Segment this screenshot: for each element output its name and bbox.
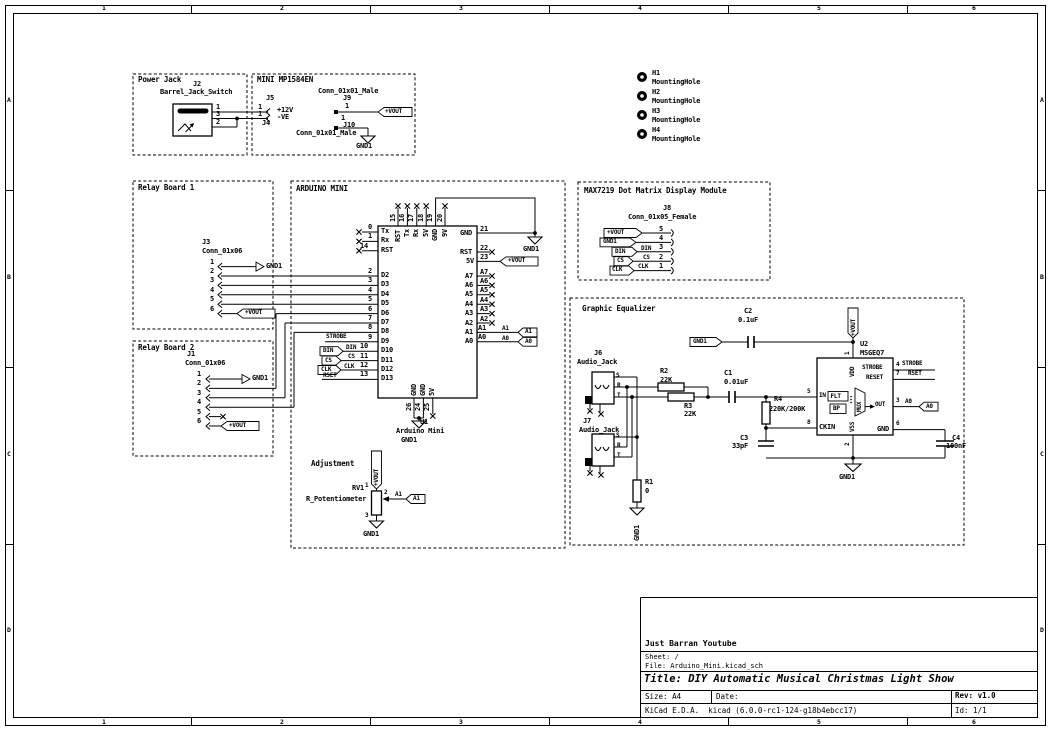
- arduino_mini-a6: A6: [465, 282, 473, 289]
- arduino_mini-18: 18: [418, 214, 425, 222]
- arduino_mini-15: 15: [390, 214, 397, 222]
- arduino_mini-d2: D2: [381, 272, 389, 279]
- arduino_mini-a1: A1: [525, 329, 532, 335]
- graphic_equalizer-a0: A0: [905, 399, 912, 405]
- mini_mp1584en-mini-mp1584en: MINI MP1584EN: [257, 76, 313, 84]
- border-col-3: 3: [459, 5, 463, 12]
- relay_board_1-relay-board-1: Relay Board 1: [138, 184, 194, 192]
- graphic_equalizer-in: IN: [819, 393, 826, 399]
- arduino_mini-25: 25: [424, 403, 431, 411]
- mounting_holes-mountinghole: MountingHole: [652, 117, 700, 124]
- arduino_mini-3: 3: [368, 277, 372, 284]
- arduino_mini-5v: 5V: [423, 229, 430, 237]
- border-col-6: 6: [972, 719, 976, 726]
- relay_board_1-6: 6: [210, 306, 214, 313]
- adjustment-1: 1: [365, 483, 368, 489]
- arduino_mini-vout: +VOUT: [508, 258, 525, 264]
- graphic_equalizer-t: T: [617, 453, 620, 459]
- power_jack-power-jack: Power Jack: [138, 76, 181, 84]
- arduino_mini-rx: Rx: [381, 237, 389, 244]
- arduino_mini-9v: 9V: [442, 229, 449, 237]
- max7219_module-2: 2: [659, 254, 663, 261]
- arduino_mini-gnd: GND: [432, 229, 439, 241]
- border-row-C: C: [7, 451, 11, 458]
- arduino_mini-d4: D4: [381, 291, 389, 298]
- graphic_equalizer-gnd1: GND1: [634, 525, 641, 541]
- arduino_mini-rx: Rx: [413, 229, 420, 237]
- arduino_mini-tx: Tx: [381, 228, 389, 235]
- arduino_mini-a1: A1: [478, 325, 486, 332]
- graphic_equalizer-8: 8: [807, 420, 810, 426]
- mounting_holes-h1: H1: [652, 70, 660, 77]
- graphic_equalizer-vout: +VOUT: [851, 319, 857, 336]
- relay_board_2-relay-board-2: Relay Board 2: [138, 344, 194, 352]
- relay_board_2-3: 3: [197, 390, 201, 397]
- max7219_module-3: 3: [659, 244, 663, 251]
- graphic_equalizer-s: S: [616, 433, 619, 439]
- kicad-schematic-sheet: Power JackJ2Barrel_Jack_Switch132MINI MP…: [0, 0, 1051, 731]
- sheet-path: Sheet: /: [645, 654, 679, 661]
- adjustment-a1: A1: [395, 492, 402, 498]
- arduino_mini-din: DIN: [346, 345, 356, 351]
- mounting_holes-h4: H4: [652, 127, 660, 134]
- graphic_equalizer-c2: C2: [744, 308, 752, 315]
- graphic_equalizer-reset: RESET: [866, 375, 883, 381]
- max7219_module-max7219-dot-matrix-display-module: MAX7219 Dot Matrix Display Module: [584, 187, 726, 195]
- graphic_equalizer-r: R: [617, 383, 620, 389]
- mini_mp1584en-j4: J4: [262, 120, 270, 127]
- max7219_module-vout: +VOUT: [607, 230, 624, 236]
- mounting_holes-h3: H3: [652, 108, 660, 115]
- arduino_mini-23: 23: [480, 254, 488, 261]
- graphic_equalizer-r4: R4: [774, 396, 782, 403]
- border-col-4: 4: [638, 719, 642, 726]
- border-col-2: 2: [280, 719, 284, 726]
- relay_board_1-gnd1: GND1: [266, 263, 282, 270]
- graphic_equalizer-r3: R3: [684, 403, 692, 410]
- power_jack-2: 2: [216, 119, 220, 126]
- max7219_module-j8: J8: [663, 205, 671, 212]
- arduino_mini-d6: D6: [381, 310, 389, 317]
- arduino_mini-4: 4: [368, 287, 372, 294]
- relay_board_1-vout: +VOUT: [245, 310, 262, 316]
- relay_board_1-3: 3: [210, 277, 214, 284]
- graphic_equalizer-vss: VSS: [850, 422, 856, 432]
- arduino_mini-7: 7: [368, 315, 372, 322]
- arduino_mini-a3: A3: [465, 310, 473, 317]
- graphic_equalizer-0-01uf: 0.01uF: [724, 379, 748, 386]
- arduino_mini-24: 24: [415, 403, 422, 411]
- max7219_module-clk: CLK: [612, 267, 622, 273]
- power_jack-j2: J2: [193, 81, 201, 88]
- power_jack-barrel-jack-switch: Barrel_Jack_Switch: [160, 89, 232, 96]
- max7219_module-cs: CS: [643, 255, 650, 261]
- graphic_equalizer-3: 3: [896, 398, 899, 404]
- arduino_mini-d9: D9: [381, 338, 389, 345]
- arduino_mini-u1: U1: [420, 419, 428, 426]
- graphic_equalizer-c4: C4: [952, 435, 960, 442]
- graphic_equalizer-vdd: VDD: [850, 367, 856, 377]
- arduino_mini-gnd: GND: [420, 384, 427, 396]
- mini_mp1584en-1: 1: [258, 111, 262, 118]
- adjustment-2: 2: [384, 490, 387, 496]
- max7219_module-cs: CS: [617, 258, 624, 264]
- relay_board_1-5: 5: [210, 296, 214, 303]
- arduino_mini-rst: RST: [395, 230, 402, 242]
- schematic-title: Title: DIY Automatic Musical Christmas L…: [644, 674, 954, 685]
- arduino_mini-8: 8: [368, 324, 372, 331]
- relay_board_1-1: 1: [210, 259, 214, 266]
- graphic_equalizer-gnd1: GND1: [693, 339, 707, 345]
- graphic_equalizer-audio-jack: Audio_Jack: [579, 427, 619, 434]
- arduino_mini-gnd: GND: [411, 384, 418, 396]
- graphic_equalizer-c1: C1: [724, 370, 732, 377]
- border-row-A: A: [7, 97, 11, 104]
- graphic_equalizer-0: 0: [645, 488, 649, 495]
- border-row-B: B: [1040, 274, 1044, 281]
- graphic_equalizer-5: 5: [807, 389, 810, 395]
- graphic_equalizer-c3: C3: [740, 435, 748, 442]
- arduino_mini-d7: D7: [381, 319, 389, 326]
- arduino_mini-cs: CS: [325, 358, 332, 364]
- arduino_mini-d3: D3: [381, 281, 389, 288]
- graphic_equalizer-22k: 22K: [684, 411, 696, 418]
- arduino_mini-2: 2: [368, 268, 372, 275]
- adjustment-rv1: RV1: [352, 485, 364, 492]
- graphic_equalizer-r1: R1: [645, 479, 653, 486]
- arduino_mini-16: 16: [399, 214, 406, 222]
- arduino_mini-a0: A0: [525, 339, 532, 345]
- mini_mp1584en-j5: J5: [266, 95, 274, 102]
- arduino_mini-rst: RST: [381, 247, 393, 254]
- arduino_mini-d13: D13: [381, 375, 393, 382]
- border-col-6: 6: [972, 5, 976, 12]
- arduino_mini-d8: D8: [381, 328, 389, 335]
- arduino_mini-9: 9: [368, 334, 372, 341]
- graphic_equalizer-j6: J6: [594, 350, 602, 357]
- arduino_mini-13: 13: [360, 371, 368, 378]
- border-row-B: B: [7, 274, 11, 281]
- relay_board_2-conn-01x06: Conn_01x06: [185, 360, 225, 367]
- graphic_equalizer-6: 6: [896, 421, 899, 427]
- arduino_mini-gnd1: GND1: [401, 437, 417, 444]
- arduino_mini-5v: 5V: [429, 388, 436, 396]
- mounting_holes-h2: H2: [652, 89, 660, 96]
- adjustment-gnd1: GND1: [363, 531, 379, 538]
- arduino_mini-d12: D12: [381, 366, 393, 373]
- graphic_equalizer-strobe: STROBE: [862, 365, 882, 371]
- max7219_module-conn-01x05-female: Conn_01x05_Female: [628, 214, 696, 221]
- arduino_mini-a1: A1: [465, 329, 473, 336]
- tool-version: KiCad E.D.A. kicad (6.0.0-rc1-124-g18b4e…: [645, 707, 857, 715]
- border-col-5: 5: [817, 5, 821, 12]
- company-name: Just Barran Youtube: [645, 640, 737, 648]
- arduino_mini-a5: A5: [480, 287, 488, 294]
- schematic-text-layer: Power JackJ2Barrel_Jack_Switch132MINI MP…: [0, 0, 1051, 731]
- arduino_mini-1: 1: [368, 233, 372, 240]
- mini_mp1584en-gnd1: GND1: [356, 143, 372, 150]
- graphic_equalizer-u2: U2: [860, 341, 868, 348]
- arduino_mini-a6: A6: [480, 278, 488, 285]
- arduino_mini-d10: D10: [381, 347, 393, 354]
- graphic_equalizer-7: 7: [896, 371, 899, 377]
- max7219_module-din: DIN: [641, 246, 651, 252]
- arduino_mini-a4: A4: [480, 297, 488, 304]
- graphic_equalizer-flt: FLT: [831, 394, 841, 400]
- sheet-rev: Rev: v1.0: [955, 692, 996, 700]
- relay_board_2-4: 4: [197, 399, 201, 406]
- arduino_mini-a1: A1: [502, 326, 509, 332]
- relay_board_2-6: 6: [197, 418, 201, 425]
- file-name: File: Arduino_Mini.kicad_sch: [645, 663, 763, 670]
- graphic_equalizer-t: T: [617, 393, 620, 399]
- arduino_mini-strobe: STROBE: [326, 334, 346, 340]
- arduino_mini-20: 20: [437, 214, 444, 222]
- relay_board_1-j3: J3: [202, 239, 210, 246]
- arduino_mini-rset: RSET: [323, 373, 337, 379]
- arduino_mini-d11: D11: [381, 357, 393, 364]
- mini_mp1584en-j10: J10: [343, 122, 355, 129]
- arduino_mini-a7: A7: [465, 273, 473, 280]
- arduino_mini-arduino-mini: ARDUINO MINI: [296, 185, 348, 193]
- graphic_equalizer-ckin: CKIN: [819, 424, 835, 431]
- max7219_module-4: 4: [659, 235, 663, 242]
- graphic_equalizer-r: R: [617, 443, 620, 449]
- mini_mp1584en-vout: +VOUT: [385, 109, 402, 115]
- adjustment-vout: +VOUT: [374, 469, 380, 486]
- arduino_mini-21: 21: [480, 226, 488, 233]
- arduino_mini-rst: RST: [460, 249, 472, 256]
- arduino_mini-a7: A7: [480, 269, 488, 276]
- relay_board_2-vout: +VOUT: [229, 423, 246, 429]
- mounting_holes-mountinghole: MountingHole: [652, 98, 700, 105]
- border-col-5: 5: [817, 719, 821, 726]
- max7219_module-5: 5: [659, 226, 663, 233]
- mounting_holes-mountinghole: MountingHole: [652, 79, 700, 86]
- border-col-1: 1: [102, 719, 106, 726]
- arduino_mini-gnd: GND: [460, 230, 472, 237]
- arduino_mini-6: 6: [368, 306, 372, 313]
- arduino_mini-a5: A5: [465, 291, 473, 298]
- graphic_equalizer-graphic-equalizer: Graphic Equalizer: [582, 305, 655, 313]
- adjustment-3: 3: [365, 513, 368, 519]
- relay_board_2-2: 2: [197, 380, 201, 387]
- relay_board_2-gnd1: GND1: [252, 375, 268, 382]
- max7219_module-clk: CLK: [638, 264, 648, 270]
- graphic_equalizer-0-1uf: 0.1uF: [738, 317, 758, 324]
- border-row-D: D: [1040, 627, 1044, 634]
- graphic_equalizer-4: 4: [896, 362, 899, 368]
- mini_mp1584en-ve: -VE: [277, 114, 289, 121]
- arduino_mini-clk: CLK: [344, 364, 354, 370]
- relay_board_1-conn-01x06: Conn_01x06: [202, 248, 242, 255]
- graphic_equalizer-1: 1: [845, 352, 851, 355]
- adjustment-a1: A1: [413, 496, 420, 502]
- arduino_mini-a0: A0: [478, 334, 486, 341]
- arduino_mini-12: 12: [360, 362, 368, 369]
- graphic_equalizer-gnd: GND: [877, 426, 889, 433]
- graphic_equalizer-bp: BP: [833, 406, 840, 412]
- border-row-C: C: [1040, 451, 1044, 458]
- mini_mp1584en-conn-01x01-male: Conn_01x01_Male: [296, 130, 356, 137]
- arduino_mini-cs: CS: [348, 354, 355, 360]
- arduino_mini-din: DIN: [323, 348, 333, 354]
- graphic_equalizer-out: OUT: [875, 402, 885, 408]
- arduino_mini-5: 5: [368, 296, 372, 303]
- arduino_mini-26: 26: [406, 403, 413, 411]
- graphic_equalizer-100nf: 100nF: [946, 443, 966, 450]
- arduino_mini-19: 19: [427, 214, 434, 222]
- max7219_module-gnd1: GND1: [603, 239, 617, 245]
- border-col-1: 1: [102, 5, 106, 12]
- arduino_mini-5v: 5V: [466, 258, 474, 265]
- border-row-A: A: [1040, 97, 1044, 104]
- max7219_module-din: DIN: [615, 249, 625, 255]
- adjustment-r-potentiometer: R_Potentiometer: [306, 496, 366, 503]
- graphic_equalizer-r2: R2: [660, 368, 668, 375]
- border-col-3: 3: [459, 719, 463, 726]
- arduino_mini-14: 14: [360, 243, 368, 250]
- arduino_mini-10: 10: [360, 343, 368, 350]
- graphic_equalizer-gnd1: GND1: [839, 474, 855, 481]
- mini_mp1584en-1: 1: [345, 103, 349, 110]
- mounting_holes-mountinghole: MountingHole: [652, 136, 700, 143]
- arduino_mini-gnd1: GND1: [523, 246, 539, 253]
- relay_board_1-4: 4: [210, 287, 214, 294]
- border-col-4: 4: [638, 5, 642, 12]
- arduino_mini-a3: A3: [480, 306, 488, 313]
- graphic_equalizer-msgeq7: MSGEQ7: [860, 350, 884, 357]
- arduino_mini-a2: A2: [465, 320, 473, 327]
- graphic_equalizer-a0: A0: [926, 404, 933, 410]
- graphic_equalizer-33pf: 33pF: [732, 443, 748, 450]
- border-col-2: 2: [280, 5, 284, 12]
- relay_board_2-1: 1: [197, 371, 201, 378]
- max7219_module-1: 1: [659, 263, 663, 270]
- sheet-id: Id: 1/1: [955, 707, 987, 715]
- graphic_equalizer-j7: J7: [583, 418, 591, 425]
- border-row-D: D: [7, 627, 11, 634]
- arduino_mini-0: 0: [368, 224, 372, 231]
- graphic_equalizer-2: 2: [845, 443, 851, 446]
- arduino_mini-a0: A0: [465, 338, 473, 345]
- graphic_equalizer-220k-200k: 220K/200K: [769, 406, 805, 413]
- arduino_mini-d5: D5: [381, 300, 389, 307]
- sheet-date: Date:: [716, 693, 739, 701]
- graphic_equalizer-strobe: STROBE: [902, 361, 922, 367]
- adjustment-adjustment: Adjustment: [311, 460, 354, 468]
- arduino_mini-22: 22: [480, 245, 488, 252]
- graphic_equalizer-audio-jack: Audio_Jack: [577, 359, 617, 366]
- sheet-size: Size: A4: [645, 693, 681, 701]
- arduino_mini-a2: A2: [480, 316, 488, 323]
- graphic_equalizer-s: S: [616, 373, 619, 379]
- arduino_mini-11: 11: [360, 353, 368, 360]
- mini_mp1584en-j9: J9: [343, 95, 351, 102]
- arduino_mini-17: 17: [408, 214, 415, 222]
- arduino_mini-arduino-mini: Arduino Mini: [396, 428, 444, 435]
- graphic_equalizer-mux: MUX: [857, 402, 863, 412]
- graphic_equalizer-22k: 22K: [660, 377, 672, 384]
- arduino_mini-tx: Tx: [404, 229, 411, 237]
- relay_board_2-j1: J1: [187, 351, 195, 358]
- graphic_equalizer-rset: RSET: [908, 371, 922, 377]
- power_jack-3: 3: [216, 111, 220, 118]
- relay_board_1-2: 2: [210, 268, 214, 275]
- arduino_mini-a4: A4: [465, 301, 473, 308]
- relay_board_2-5: 5: [197, 409, 201, 416]
- arduino_mini-a0: A0: [502, 336, 509, 342]
